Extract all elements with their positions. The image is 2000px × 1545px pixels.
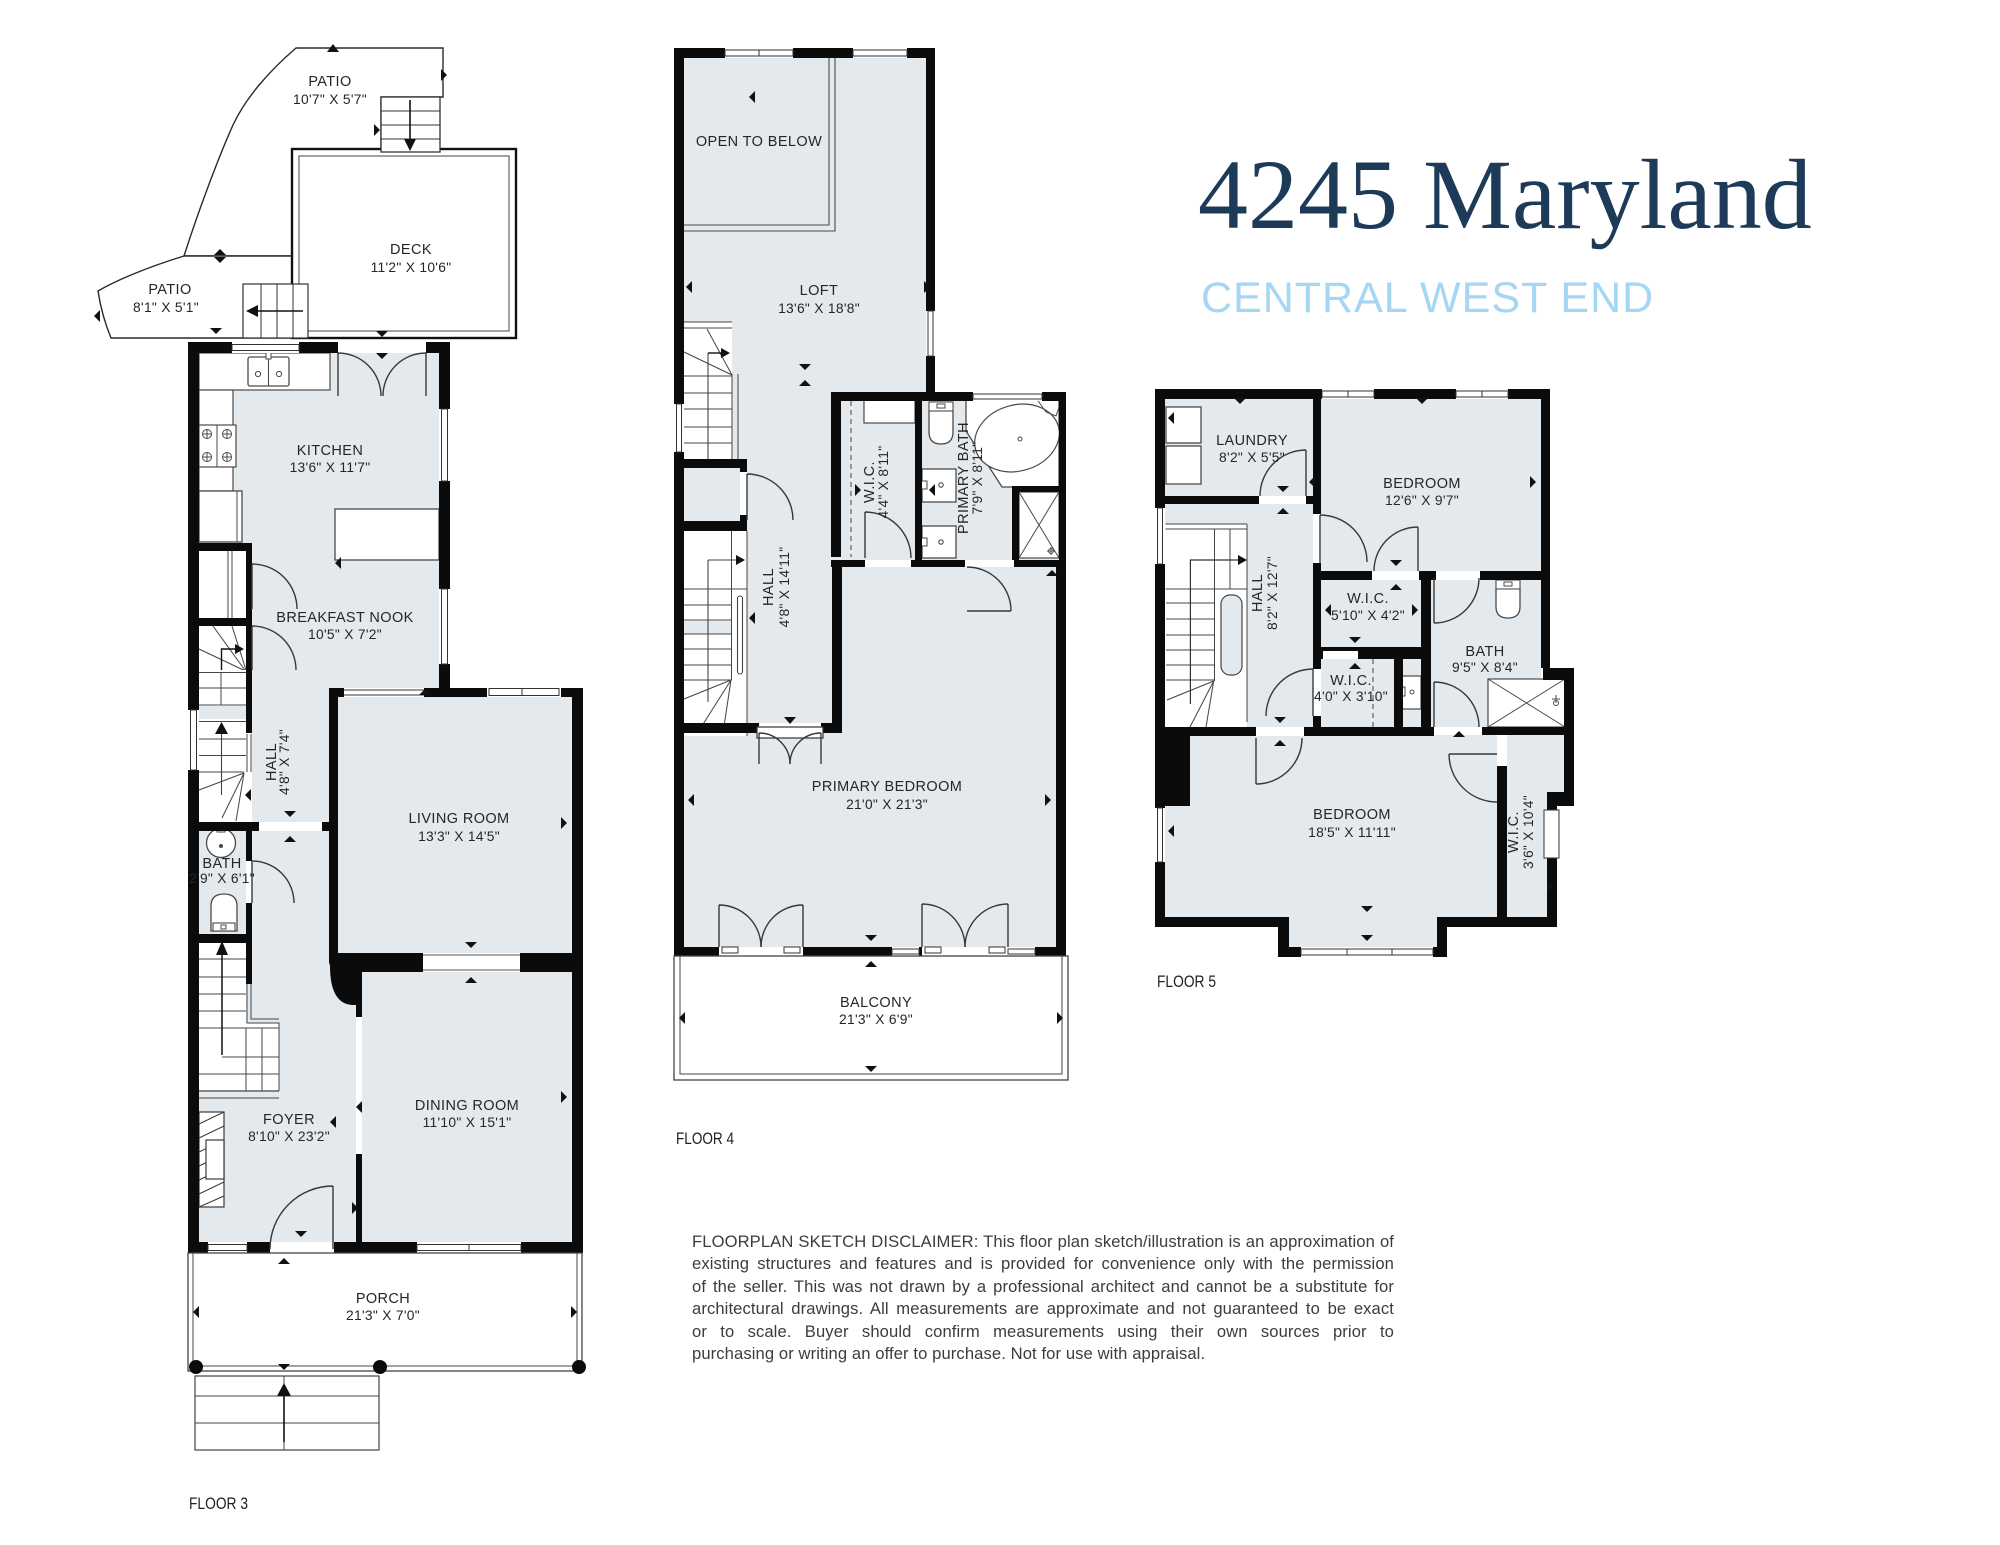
svg-text:PATIO: PATIO: [308, 74, 351, 90]
svg-text:12'6" X 9'7": 12'6" X 9'7": [1385, 493, 1459, 508]
svg-text:8'2" X 5'5": 8'2" X 5'5": [1219, 450, 1285, 465]
svg-text:W.I.C.: W.I.C.: [1330, 673, 1372, 689]
svg-text:8'2" X 12'7": 8'2" X 12'7": [1265, 556, 1280, 630]
svg-text:13'6" X 18'8": 13'6" X 18'8": [778, 301, 860, 316]
svg-text:4'0" X 3'10": 4'0" X 3'10": [1314, 689, 1388, 704]
svg-text:LIVING ROOM: LIVING ROOM: [408, 811, 509, 827]
svg-text:FLOOR 4: FLOOR 4: [676, 1130, 734, 1148]
svg-text:LOFT: LOFT: [800, 283, 839, 299]
svg-text:21'3" X 6'9": 21'3" X 6'9": [839, 1012, 913, 1027]
svg-text:DINING ROOM: DINING ROOM: [415, 1098, 519, 1114]
svg-text:7'9" X 8'11": 7'9" X 8'11": [970, 442, 985, 515]
svg-text:BREAKFAST NOOK: BREAKFAST NOOK: [276, 610, 413, 626]
svg-text:OPEN TO BELOW: OPEN TO BELOW: [696, 134, 822, 150]
svg-text:BALCONY: BALCONY: [840, 995, 912, 1011]
svg-text:BEDROOM: BEDROOM: [1383, 476, 1461, 492]
svg-text:LAUNDRY: LAUNDRY: [1216, 433, 1288, 449]
svg-text:11'2" X 10'6": 11'2" X 10'6": [371, 260, 452, 275]
svg-text:9'5" X 8'4": 9'5" X 8'4": [1452, 660, 1518, 675]
svg-text:CENTRAL WEST END: CENTRAL WEST END: [1201, 274, 1654, 322]
svg-text:10'5" X 7'2": 10'5" X 7'2": [308, 627, 382, 642]
svg-text:10'7" X 5'7": 10'7" X 5'7": [293, 92, 367, 107]
svg-text:W.I.C.: W.I.C.: [1347, 591, 1389, 607]
svg-text:FOYER: FOYER: [263, 1112, 315, 1128]
svg-text:BEDROOM: BEDROOM: [1313, 807, 1391, 823]
svg-text:4245 Maryland: 4245 Maryland: [1198, 139, 1812, 250]
svg-text:18'5" X 11'11": 18'5" X 11'11": [1308, 825, 1396, 840]
svg-text:8'1" X 5'1": 8'1" X 5'1": [133, 300, 199, 315]
svg-text:3'6" X 10'4": 3'6" X 10'4": [1521, 795, 1536, 869]
svg-text:PRIMARY BEDROOM: PRIMARY BEDROOM: [812, 779, 963, 795]
svg-text:DECK: DECK: [390, 242, 432, 258]
svg-text:KITCHEN: KITCHEN: [297, 443, 363, 459]
svg-text:21'3" X 7'0": 21'3" X 7'0": [346, 1308, 420, 1323]
svg-text:11'10" X 15'1": 11'10" X 15'1": [423, 1115, 512, 1130]
svg-text:13'3" X 14'5": 13'3" X 14'5": [418, 829, 500, 844]
svg-text:BATH: BATH: [202, 856, 241, 872]
svg-text:BATH: BATH: [1465, 644, 1504, 660]
svg-text:FLOOR 3: FLOOR 3: [189, 1495, 248, 1513]
svg-text:4'8" X 7'4": 4'8" X 7'4": [277, 729, 292, 795]
svg-text:8'10" X 23'2": 8'10" X 23'2": [248, 1129, 330, 1144]
svg-text:W.I.C.: W.I.C.: [1506, 811, 1522, 853]
svg-text:5'10" X 4'2": 5'10" X 4'2": [1331, 608, 1405, 623]
svg-text:21'0" X 21'3": 21'0" X 21'3": [846, 797, 928, 812]
svg-text:4'4" X 8'11": 4'4" X 8'11": [876, 446, 891, 519]
svg-text:HALL: HALL: [761, 568, 777, 606]
svg-text:FLOOR 5: FLOOR 5: [1157, 973, 1216, 991]
svg-text:4'8" X 14'11": 4'8" X 14'11": [777, 547, 792, 628]
svg-text:HALL: HALL: [1250, 574, 1266, 612]
svg-text:2'9" X 6'1": 2'9" X 6'1": [189, 871, 255, 886]
svg-text:13'6" X 11'7": 13'6" X 11'7": [290, 460, 371, 475]
svg-text:PORCH: PORCH: [356, 1291, 410, 1307]
svg-text:PATIO: PATIO: [148, 282, 191, 298]
